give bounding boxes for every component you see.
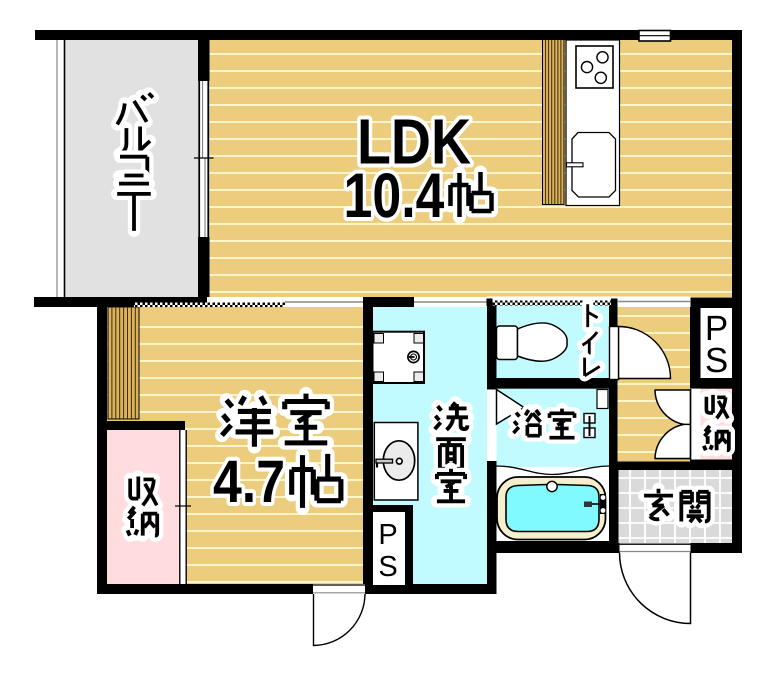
svg-text:P: P	[378, 519, 397, 551]
svg-text:S: S	[705, 341, 728, 380]
svg-text:10.4: 10.4	[344, 161, 445, 231]
svg-text:S: S	[378, 551, 397, 583]
svg-text:4.7: 4.7	[213, 448, 285, 515]
